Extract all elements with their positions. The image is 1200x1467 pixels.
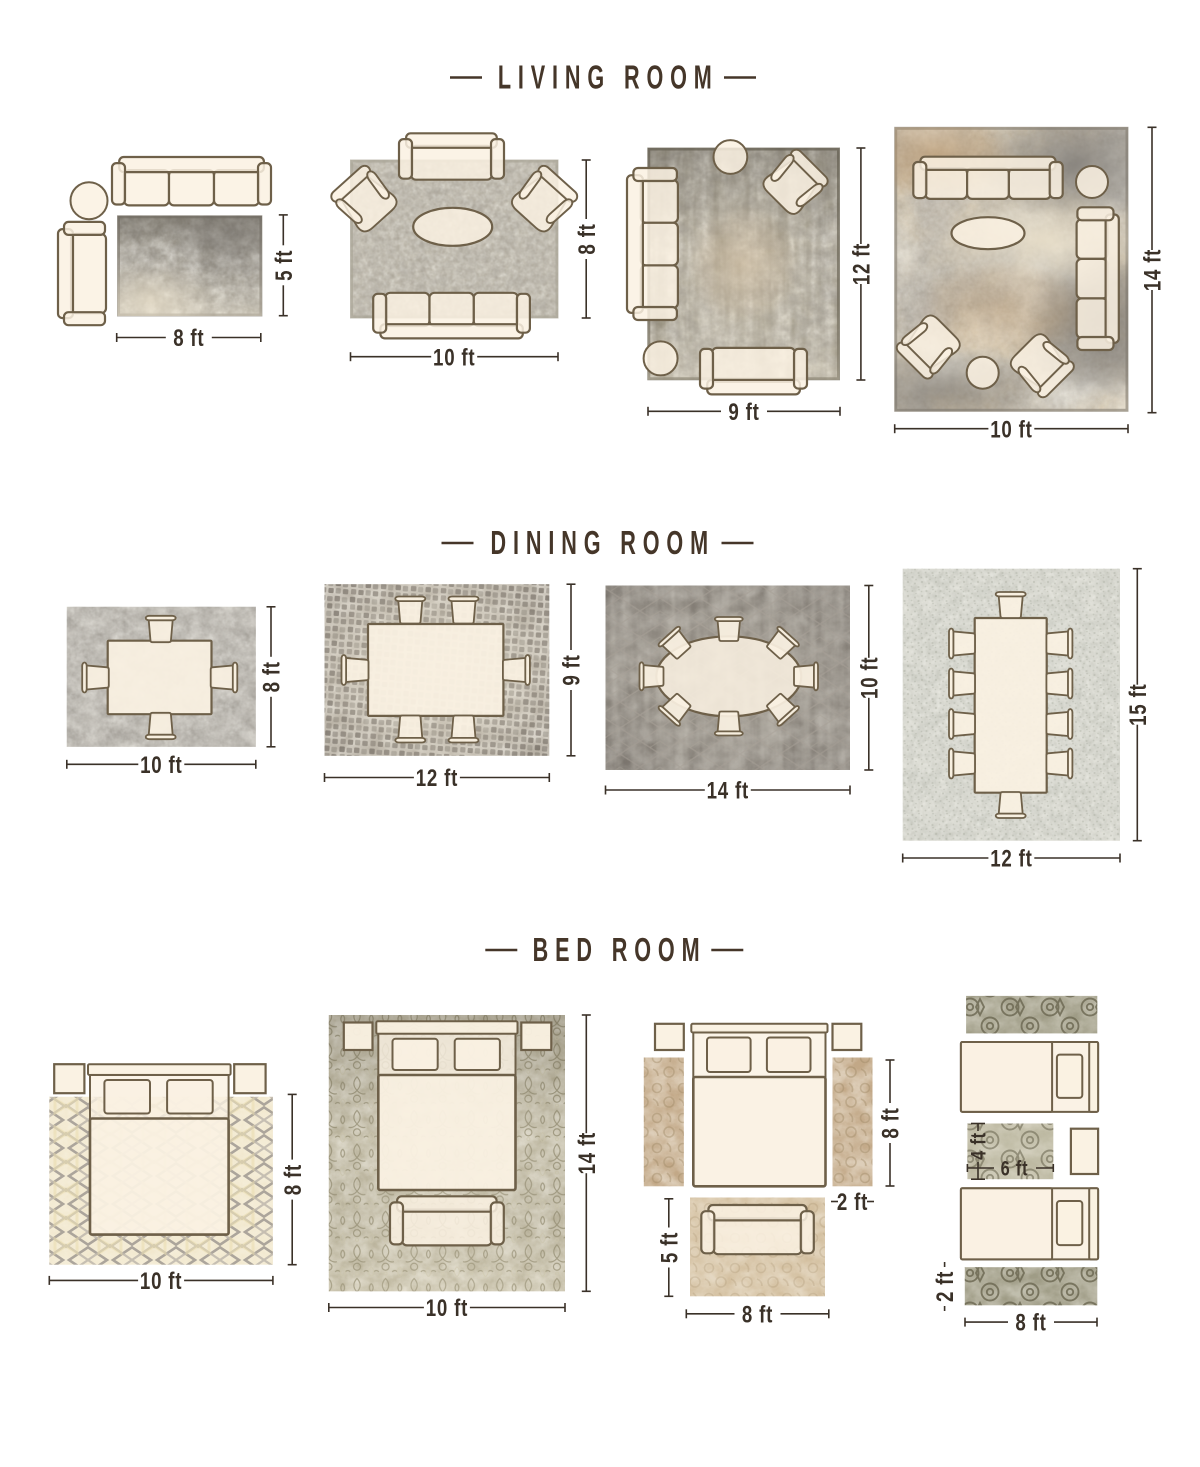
svg-text:DINING ROOM: DINING ROOM — [491, 524, 715, 561]
svg-text:15 ft: 15 ft — [1125, 684, 1152, 726]
svg-text:10 ft: 10 ft — [140, 752, 182, 779]
svg-text:8 ft: 8 ft — [173, 325, 204, 352]
svg-text:10 ft: 10 ft — [140, 1268, 182, 1295]
svg-text:14 ft: 14 ft — [574, 1132, 601, 1174]
svg-text:2 ft: 2 ft — [837, 1189, 868, 1216]
svg-text:4 ft: 4 ft — [967, 1132, 990, 1160]
svg-text:8 ft: 8 ft — [258, 661, 285, 692]
svg-text:12 ft: 12 ft — [990, 845, 1032, 872]
svg-text:12 ft: 12 ft — [848, 243, 875, 285]
svg-text:2 ft: 2 ft — [932, 1271, 959, 1302]
svg-text:LIVING ROOM: LIVING ROOM — [498, 59, 719, 96]
svg-text:8 ft: 8 ft — [877, 1107, 904, 1138]
svg-text:12 ft: 12 ft — [416, 765, 458, 792]
svg-text:8 ft: 8 ft — [280, 1164, 307, 1195]
svg-text:8 ft: 8 ft — [742, 1301, 773, 1328]
svg-text:8 ft: 8 ft — [574, 223, 601, 254]
svg-text:5 ft: 5 ft — [656, 1232, 683, 1263]
svg-text:14 ft: 14 ft — [1139, 249, 1166, 291]
svg-text:8 ft: 8 ft — [1015, 1310, 1046, 1337]
svg-text:9 ft: 9 ft — [728, 399, 759, 426]
svg-text:10 ft: 10 ft — [433, 344, 475, 371]
svg-text:5 ft: 5 ft — [271, 250, 298, 281]
svg-text:6 ft: 6 ft — [1001, 1157, 1029, 1180]
svg-text:BED ROOM: BED ROOM — [533, 931, 707, 968]
svg-text:10 ft: 10 ft — [856, 657, 883, 699]
svg-text:9 ft: 9 ft — [558, 654, 585, 685]
svg-text:10 ft: 10 ft — [426, 1295, 468, 1322]
svg-text:14 ft: 14 ft — [707, 777, 749, 804]
svg-text:10 ft: 10 ft — [990, 416, 1032, 443]
